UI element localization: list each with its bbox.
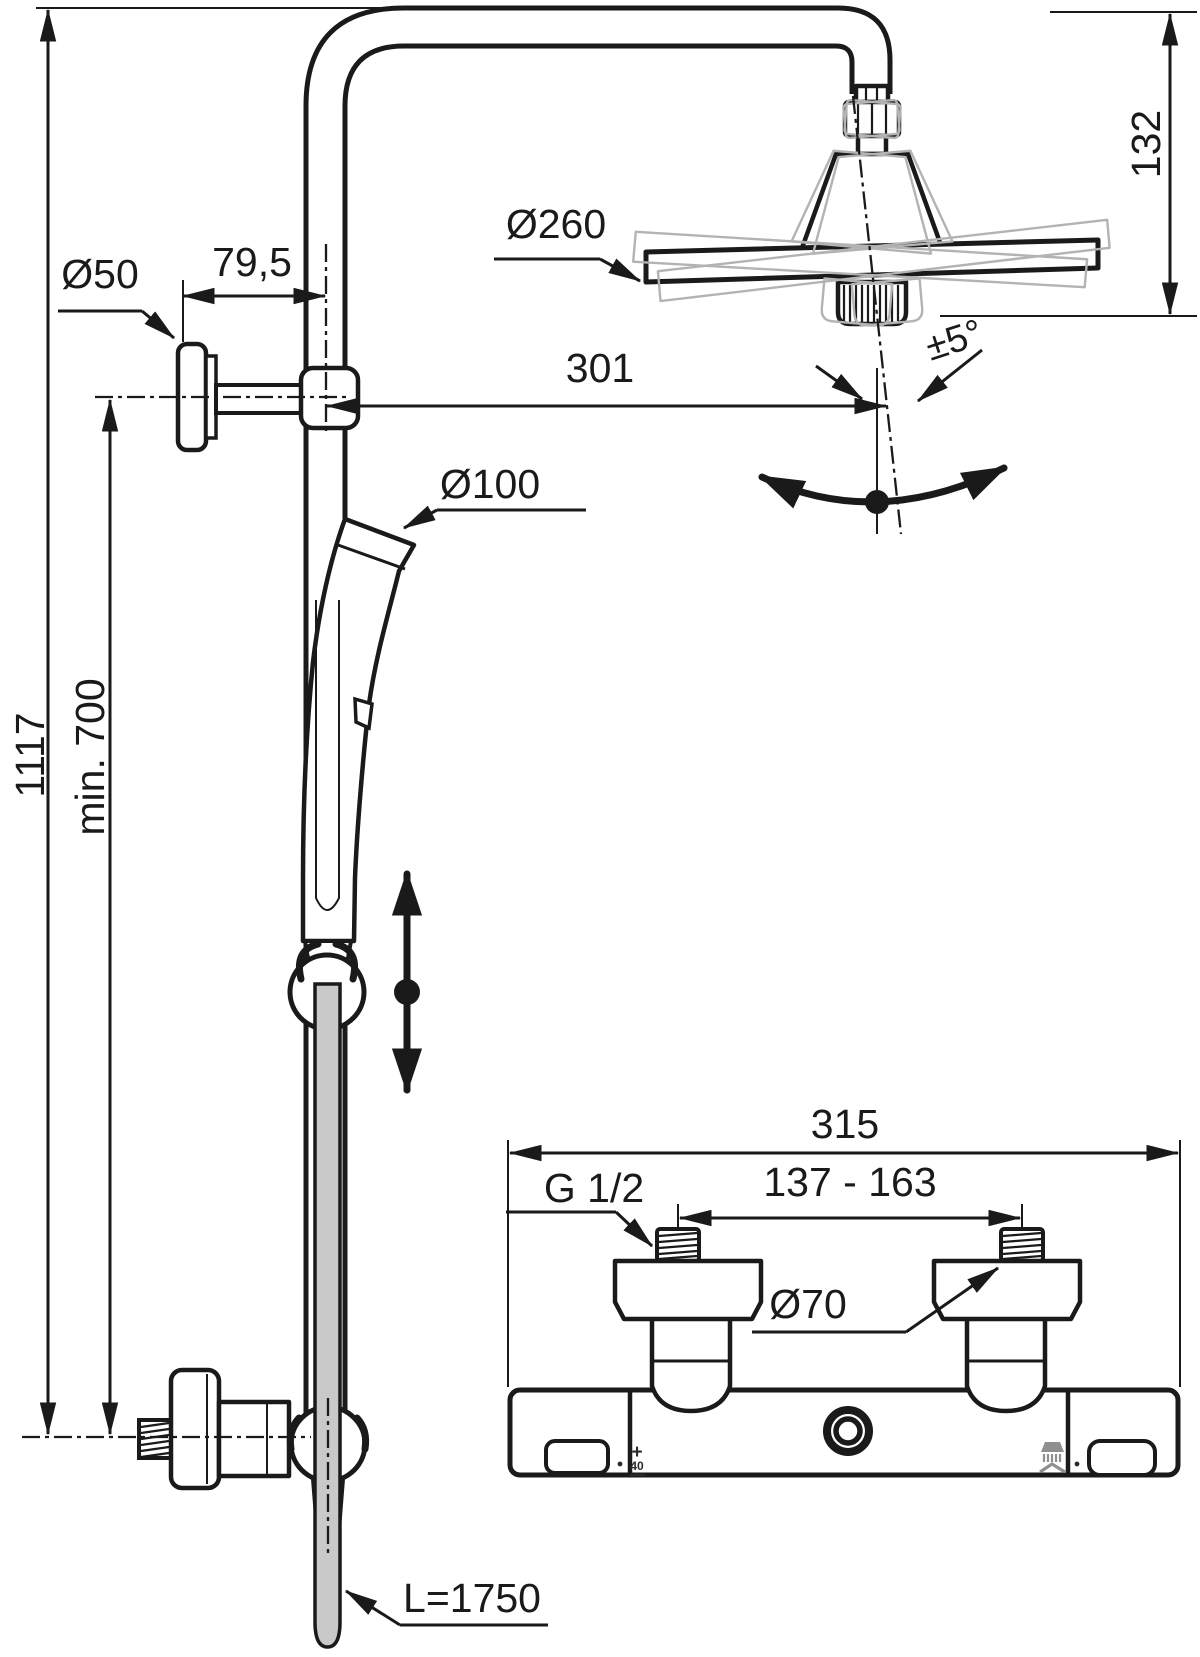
dim-min-mounting-height: min. 700 [67, 678, 113, 835]
elbow-flange [171, 1370, 219, 1488]
label-d100: Ø100 [404, 461, 586, 528]
dim-rain-head-diameter: Ø260 [506, 201, 606, 247]
technical-drawing-page: ±5° [0, 0, 1200, 1657]
left-inlet-neck [652, 1319, 730, 1411]
nozzle-nut [838, 282, 906, 324]
dim-bracket-diameter: Ø50 [61, 251, 139, 297]
height-adjust-arrow [394, 874, 420, 1090]
dim-inlet-spacing: 137 - 163 [763, 1159, 936, 1205]
head-nipple [856, 86, 888, 102]
label-g12: G 1/2 [506, 1165, 652, 1246]
swivel-pivot-dot [865, 490, 889, 514]
overhead-shower-head [630, 82, 1115, 534]
dimension-1117: 1117 [7, 10, 53, 1434]
dim-mixer-width: 315 [811, 1101, 879, 1147]
dim-overall-height: 1117 [7, 712, 53, 797]
dimension-132: 132 [1123, 14, 1170, 314]
shower-system-drawing: ±5° [0, 0, 1200, 1657]
head-swivel-arrow [762, 468, 1004, 514]
right-inlet-block [934, 1261, 1080, 1319]
dim-inlet-thread: G 1/2 [544, 1165, 644, 1211]
hand-shower-body [303, 519, 414, 941]
tilt-angle-annotation: ±5° [816, 312, 988, 401]
bracket-arm [216, 385, 301, 413]
dim-mixer-body-diameter: Ø70 [769, 1281, 847, 1327]
thermostatic-mixer: + 40 [510, 1229, 1178, 1475]
label-d260: Ø260 [494, 201, 640, 281]
label-hose-length: L=1750 [346, 1575, 548, 1625]
head-cone [802, 154, 942, 248]
dim-head-drop: 132 [1123, 110, 1169, 178]
temp-40-mark: 40 [630, 1459, 644, 1473]
dimension-315: 315 [510, 1101, 1178, 1153]
hand-shower [290, 519, 414, 1029]
dim-head-reach: 301 [566, 345, 634, 391]
dimension-301: 301 [327, 345, 886, 406]
dim-hose-length: L=1750 [403, 1575, 541, 1621]
dim-hand-shower-diameter: Ø100 [440, 461, 540, 507]
dim-head-tilt-angle: ±5° [921, 312, 988, 370]
left-inlet-block [615, 1261, 761, 1319]
flow-handle-grip [1089, 1441, 1155, 1475]
spray-mode-lever [355, 699, 372, 728]
dimension-137-163: 137 - 163 [680, 1159, 1020, 1218]
adjust-pivot-dot [394, 979, 420, 1005]
elbow-body [219, 1402, 289, 1476]
dimension-min-700: min. 700 [67, 400, 113, 1434]
shower-hose [315, 984, 340, 1647]
head-neck [858, 136, 886, 154]
right-inlet-neck [967, 1319, 1045, 1411]
dim-bracket-offset: 79,5 [212, 239, 292, 285]
temp-handle-grip [546, 1441, 608, 1473]
label-d50: Ø50 [58, 251, 174, 338]
